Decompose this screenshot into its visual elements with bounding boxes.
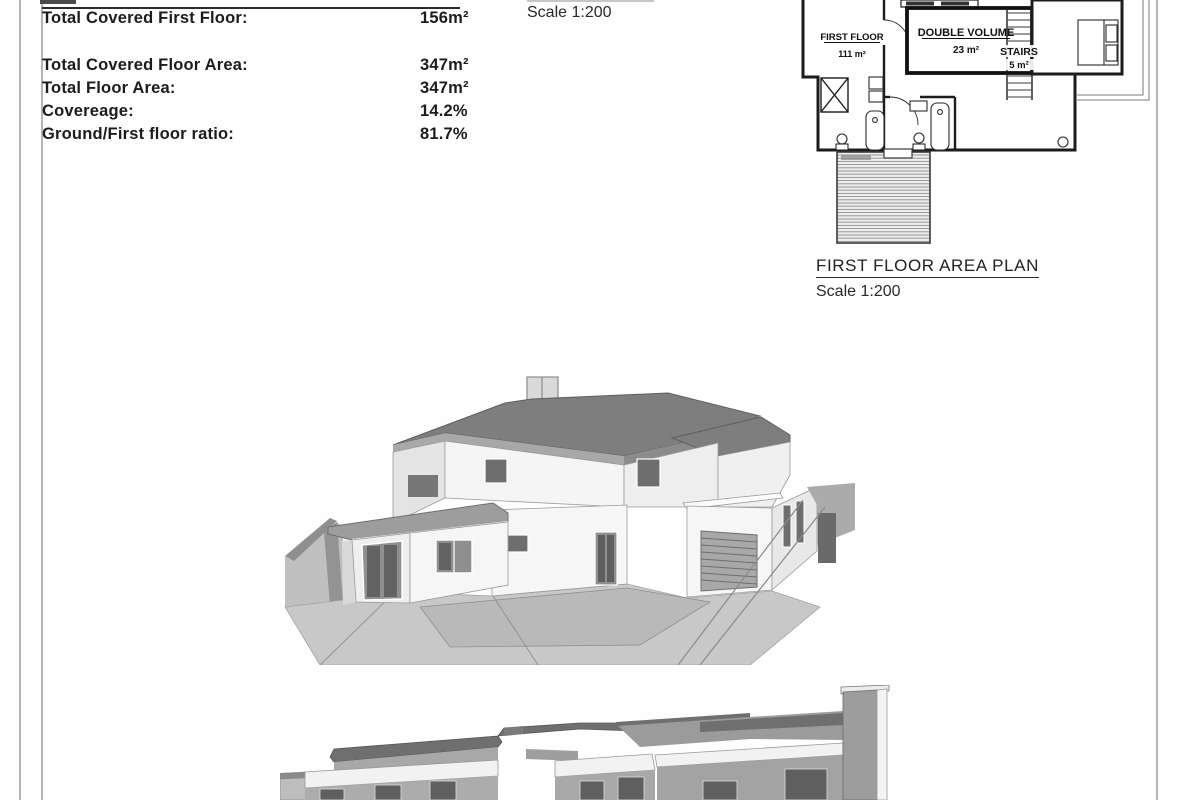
row-value: 14.2% [420,102,468,121]
table-row: Covereage: 14.2% [42,102,522,121]
row-value: 81.7% [420,125,468,144]
row-value: 347m² [420,79,469,98]
table-row: Total Covered First Floor: 156m² [42,9,522,28]
window [703,781,737,800]
window [618,777,644,800]
garage-roller-door [701,531,757,591]
window [320,789,344,800]
sheet-frame-left-outer [19,0,21,800]
upper-front-window [485,459,507,483]
table-row: Total Covered Floor Area: 347m² [42,56,522,75]
room-area: 111 m² [838,49,866,59]
wing-window [436,540,472,573]
window [430,781,456,800]
row-label: Total Covered Floor Area: [42,56,248,74]
row-label: Total Covered First Floor: [42,9,248,27]
upper-left-window [408,475,438,497]
room-name: FIRST FLOOR [820,32,883,43]
row-label: Total Floor Area: [42,79,176,97]
row-label: Ground/First floor ratio: [42,125,234,143]
house-3d-rendering-rear [280,685,900,800]
garage-side-window [783,505,791,547]
chimney [527,377,558,400]
first-floor-plan-caption: FIRST FLOOR AREA PLAN Scale 1:200 [816,256,1039,301]
shaft-icon [821,78,848,112]
ground-floor-scale: Scale 1:200 [527,4,612,22]
wing-glass-door [362,541,402,600]
window [580,781,604,800]
balcony-cutoff [901,0,978,7]
window [785,769,827,800]
rear-door [818,513,836,563]
cutoff-title-underline [527,0,654,2]
plan-title: FIRST FLOOR AREA PLAN [816,256,1039,278]
cutoff-text-fragment [40,0,76,4]
drawing-sheet: Total Covered First Floor: 156m² Total C… [0,0,1200,800]
stair-tower [841,685,889,800]
room-area: 23 m² [953,45,980,56]
deck [837,149,930,243]
house-3d-rendering-front [280,355,855,665]
table-row: Total Floor Area: 347m² [42,79,522,98]
plan-scale: Scale 1:200 [816,283,901,301]
room-name: STAIRS [1000,46,1038,58]
window [375,785,401,800]
bed-icon [1078,20,1118,65]
room-area: 5 m² [1009,60,1029,71]
row-value: 156m² [420,9,469,28]
entry-door [595,532,617,585]
upper-right-window [637,459,660,487]
bathroom-fixtures [836,77,1068,150]
row-value: 347m² [420,56,469,75]
row-label: Covereage: [42,102,134,120]
mid-terrace [526,749,578,761]
garage-side-wall [772,487,817,590]
room-name: DOUBLE VOLUME [918,27,1015,39]
table-row: Ground/First floor ratio: 81.7% [42,125,522,144]
